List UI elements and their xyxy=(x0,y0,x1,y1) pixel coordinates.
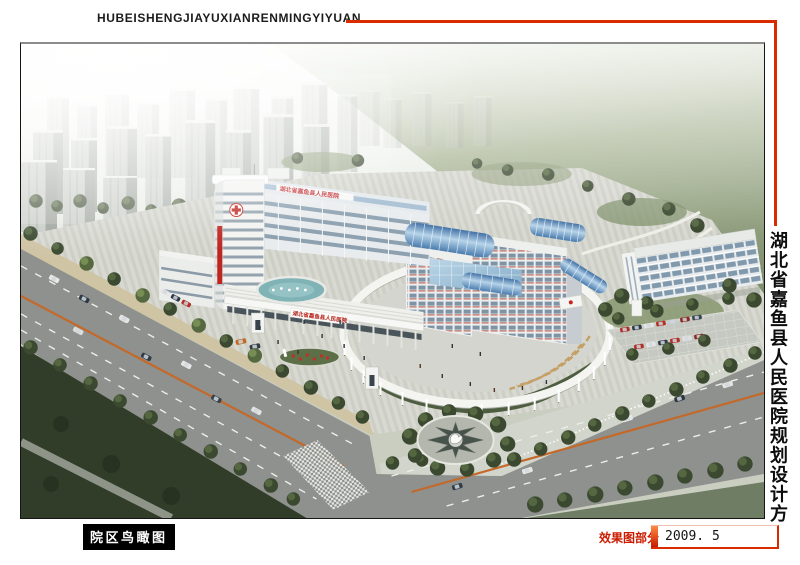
aerial-rendering: 湖北省嘉鱼县人民医院 xyxy=(21,44,764,518)
date-box: 2009. 5 xyxy=(651,525,779,549)
rendering-frame: 湖北省嘉鱼县人民医院 xyxy=(20,42,765,519)
view-caption: 院区鸟瞰图 xyxy=(83,524,175,550)
section-label: 效果图部分 xyxy=(599,529,659,546)
presentation-board: HUBEISHENGJIAYUXIANRENMINGYIYUAN 湖北省嘉鱼县人… xyxy=(0,0,800,565)
gate-kiosk xyxy=(632,300,642,316)
header-pinyin-title: HUBEISHENGJIAYUXIANRENMINGYIYUAN xyxy=(97,11,361,25)
right-red-rule xyxy=(774,20,777,226)
flower-bed xyxy=(279,348,339,366)
date-box-accent-bar xyxy=(651,526,658,547)
date-text: 2009. 5 xyxy=(665,529,720,544)
top-red-rule xyxy=(346,20,776,23)
